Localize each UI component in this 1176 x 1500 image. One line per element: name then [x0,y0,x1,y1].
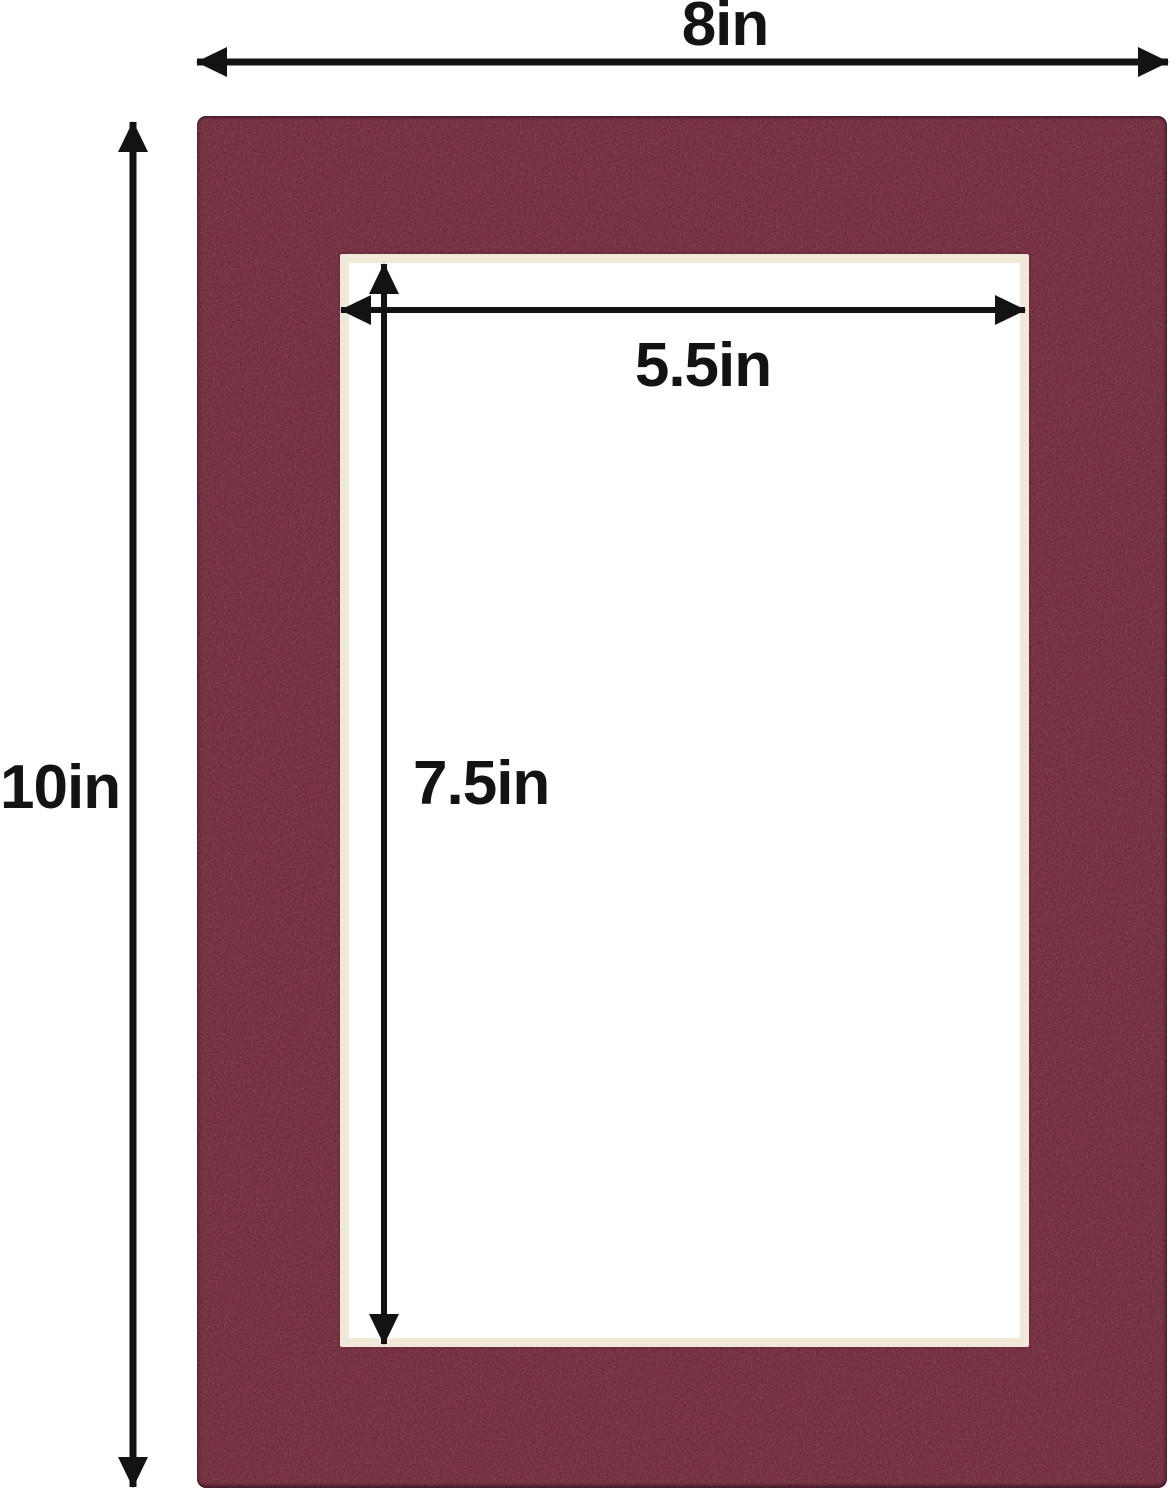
opening-width-label: 5.5in [603,335,803,397]
mat-board [197,116,1167,1488]
opening-height-label: 7.5in [413,753,613,815]
outer-height-label: 10in [0,757,112,819]
mat-dimension-diagram: 8in 10in 5.5in 7.5in [0,0,1176,1500]
outer-width-label: 8in [620,0,830,56]
